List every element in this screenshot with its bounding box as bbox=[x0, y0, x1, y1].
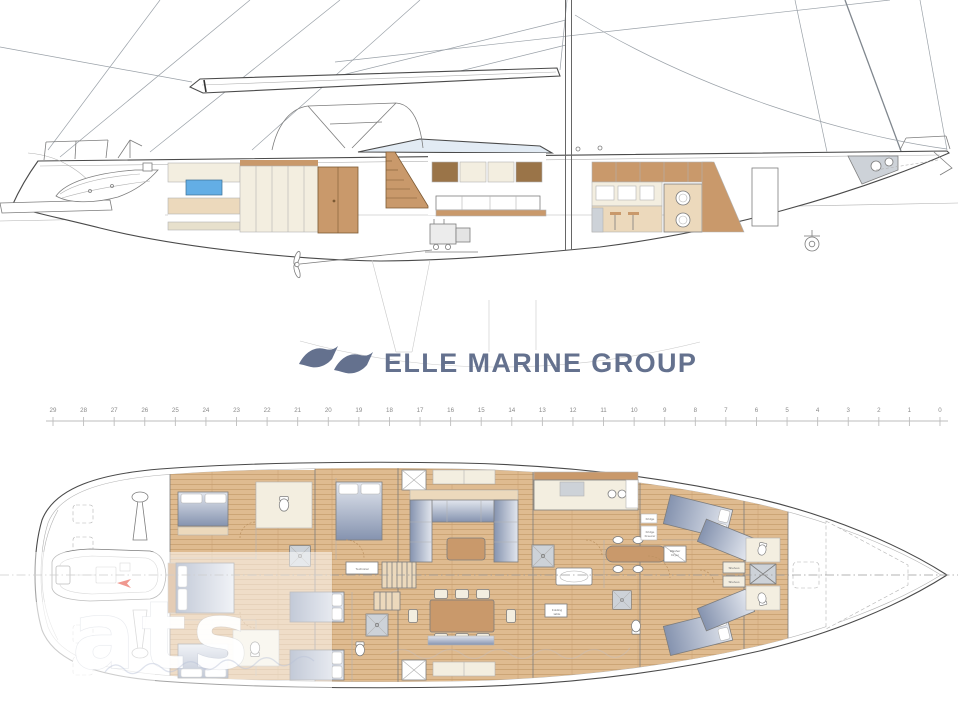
stern-davit-crane bbox=[118, 140, 142, 158]
ruler-number: 22 bbox=[264, 407, 271, 414]
genoa-luff-curve bbox=[575, 15, 947, 149]
ruler-number: 19 bbox=[355, 407, 362, 414]
ruler-number: 27 bbox=[111, 407, 118, 414]
aft-cabin-profile bbox=[168, 163, 240, 232]
winch bbox=[598, 146, 602, 150]
ruler-number: 9 bbox=[663, 407, 667, 414]
ruler-number: 13 bbox=[539, 407, 546, 414]
ruler-number: 2 bbox=[877, 407, 881, 414]
guest-bed bbox=[336, 482, 382, 540]
equipment-label: Freezer bbox=[645, 534, 656, 538]
yacht-plan-sheet: ELLE MARINE GROUP 2928272625242322212019… bbox=[0, 0, 960, 720]
ruler-number: 7 bbox=[724, 407, 728, 414]
ruler-number: 23 bbox=[233, 407, 240, 414]
wardrobe-profile bbox=[240, 160, 358, 233]
ruler-number: 14 bbox=[508, 407, 515, 414]
shower bbox=[532, 545, 554, 567]
station-ruler: 2928272625242322212019181716151413121110… bbox=[46, 407, 948, 426]
equipment-label: Fridge bbox=[646, 517, 655, 521]
ruler-number: 15 bbox=[478, 407, 485, 414]
ruler-number: 29 bbox=[50, 407, 57, 414]
ruler-number: 25 bbox=[172, 407, 179, 414]
profile-view bbox=[0, 0, 958, 367]
ruler-number: 16 bbox=[447, 407, 454, 414]
logo-text: ELLE MARINE GROUP bbox=[384, 348, 697, 378]
ruler-number: 1 bbox=[908, 407, 912, 414]
equipment-label: Dryer bbox=[671, 553, 679, 557]
forward-door-profile bbox=[752, 168, 778, 226]
ruler-number: 8 bbox=[694, 407, 698, 414]
washer-dryer-profile bbox=[664, 184, 702, 232]
logo-wave-icon bbox=[299, 346, 373, 373]
ruler-number: 3 bbox=[847, 407, 851, 414]
ruler-number: 28 bbox=[80, 407, 87, 414]
boom bbox=[190, 68, 560, 93]
bow-thruster bbox=[804, 230, 820, 251]
ruler-number: 0 bbox=[938, 407, 942, 414]
bathtub bbox=[556, 568, 592, 585]
equipment-label: Shelves bbox=[728, 580, 739, 584]
ruler-number: 20 bbox=[325, 407, 332, 414]
equipment-label: Technical bbox=[356, 567, 369, 571]
crosshatch-locker bbox=[750, 564, 776, 584]
ruler-number: 12 bbox=[570, 407, 577, 414]
coffee-table bbox=[447, 538, 485, 560]
ruler-number: 11 bbox=[600, 407, 607, 414]
bow-pulpit bbox=[900, 136, 950, 150]
ruler-number: 10 bbox=[631, 407, 638, 414]
watermark-text: ats bbox=[72, 582, 254, 691]
twin-bed bbox=[178, 492, 228, 535]
equipment-label: table bbox=[554, 612, 561, 616]
shower bbox=[366, 614, 388, 636]
shower bbox=[613, 591, 632, 610]
ruler-number: 21 bbox=[294, 407, 301, 414]
winch bbox=[576, 147, 580, 151]
logo: ELLE MARINE GROUP bbox=[299, 346, 697, 378]
ruler-number: 24 bbox=[202, 407, 209, 414]
ruler-number: 18 bbox=[386, 407, 393, 414]
ruler-number: 5 bbox=[785, 407, 789, 414]
dining-table bbox=[430, 600, 494, 632]
equipment-label: Shelves bbox=[728, 566, 739, 570]
dining-bench bbox=[428, 636, 494, 645]
ruler-number: 4 bbox=[816, 407, 820, 414]
ruler-number: 17 bbox=[417, 407, 424, 414]
ruler-number: 26 bbox=[141, 407, 148, 414]
ruler-number: 6 bbox=[755, 407, 759, 414]
drawing-canvas: ELLE MARINE GROUP 2928272625242322212019… bbox=[0, 0, 960, 720]
